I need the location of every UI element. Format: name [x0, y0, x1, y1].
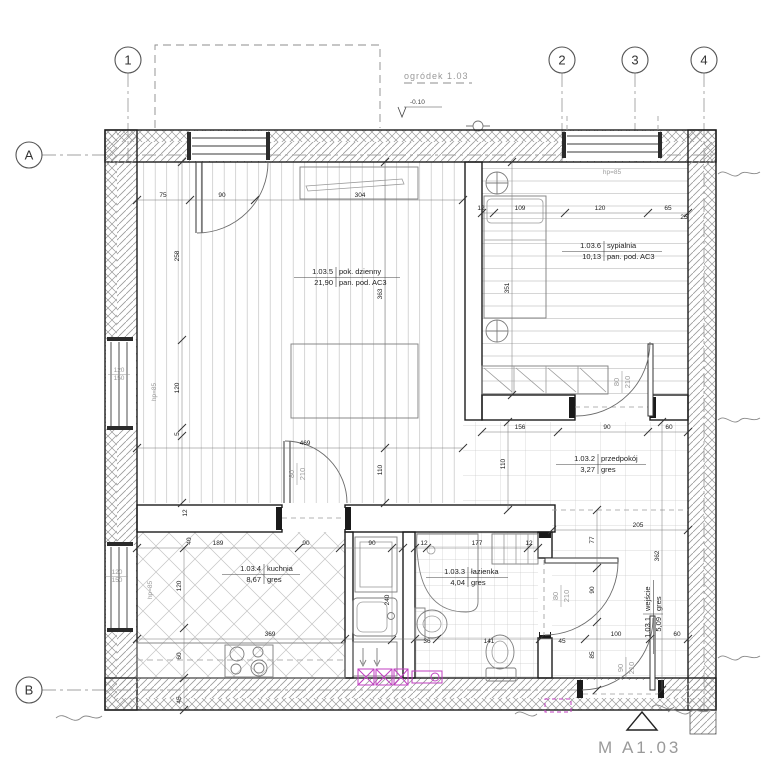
floor-plan-page: 1 2 3 4 A B ogródek 1.03 -0.10	[0, 0, 763, 768]
axis-label: 4	[700, 53, 707, 68]
svg-text:1.03.6: 1.03.6	[580, 241, 601, 250]
sheet-marker: M A1.03	[598, 712, 681, 757]
grid-axis-row-B: B	[16, 677, 42, 703]
svg-text:90: 90	[616, 664, 625, 672]
svg-text:10,13: 10,13	[582, 252, 601, 261]
grid-axis-column-4: 4	[691, 47, 717, 73]
svg-text:gres: gres	[267, 575, 282, 584]
dimension-label: 12	[182, 509, 189, 517]
svg-text:1.03.1: 1.03.1	[643, 617, 652, 638]
dimension-label: 240	[384, 594, 391, 605]
dimension-label: 351	[504, 282, 511, 293]
grid-axis-row-A: A	[16, 142, 42, 168]
svg-text:1.03.2: 1.03.2	[574, 454, 595, 463]
svg-text:4,04: 4,04	[450, 578, 465, 587]
fridge	[355, 537, 397, 592]
terrace-outline: ogródek 1.03 -0.10	[155, 45, 490, 131]
dimension-label: 90	[603, 424, 611, 431]
svg-text:21,90: 21,90	[314, 278, 333, 287]
svg-text:gres: gres	[601, 465, 616, 474]
sheet-label: M A1.03	[598, 738, 681, 757]
dimension-label: 65	[664, 205, 672, 212]
dimension-label: 45	[176, 696, 183, 704]
bathroom-floor	[415, 532, 538, 678]
dimension-label: 177	[472, 540, 483, 547]
svg-text:pok. dzienny: pok. dzienny	[339, 267, 381, 276]
svg-text:3,27: 3,27	[580, 465, 595, 474]
dimension-label: 156	[515, 424, 526, 431]
svg-text:80: 80	[551, 592, 560, 600]
dimension-label: 36	[423, 638, 431, 645]
dimension-label: 110	[500, 458, 507, 469]
svg-text:80: 80	[612, 378, 621, 386]
axis-label: 2	[558, 53, 565, 68]
svg-text:przedpokój: przedpokój	[601, 454, 638, 463]
svg-text:hp=85: hp=85	[603, 169, 622, 176]
kitchen-floor	[137, 532, 345, 678]
dimension-label: 60	[176, 652, 183, 660]
axis-label: A	[25, 148, 34, 163]
floor-plan-drawing: 1 2 3 4 A B ogródek 1.03 -0.10	[0, 0, 763, 768]
dimension-label: 110	[377, 464, 384, 475]
grid-axis-column-1: 1	[115, 47, 141, 73]
dimension-label: 5	[174, 432, 181, 436]
svg-text:-0.10: -0.10	[410, 99, 425, 106]
svg-text:gres: gres	[471, 578, 486, 587]
dimension-label: 60	[673, 631, 681, 638]
svg-text:150: 150	[114, 375, 125, 382]
dimension-label: 60	[665, 424, 673, 431]
north-triangle	[627, 712, 657, 730]
dimension-label: 12	[477, 205, 485, 212]
dimension-label: 25	[680, 214, 688, 221]
dimension-label: 120	[176, 580, 183, 591]
dimension-label: 120	[174, 382, 181, 393]
svg-text:210: 210	[298, 468, 307, 481]
svg-text:1.03.3: 1.03.3	[444, 567, 465, 576]
svg-text:gres: gres	[654, 596, 663, 611]
svg-text:pan. pod. AC3: pan. pod. AC3	[339, 278, 387, 287]
dimension-label: 100	[611, 631, 622, 638]
svg-text:5,09: 5,09	[654, 617, 663, 632]
dimension-label: 45	[558, 638, 566, 645]
dimension-label: 189	[213, 540, 224, 547]
dimension-label: 363	[377, 288, 384, 299]
dimension-label: 258	[174, 250, 181, 261]
bedside-lamp	[486, 172, 508, 194]
svg-text:1.03.4: 1.03.4	[240, 564, 261, 573]
dimension-label: 12	[525, 540, 533, 547]
dimension-label: 141	[484, 638, 495, 645]
hall-floor	[463, 422, 688, 505]
dimension-label: 120	[595, 205, 606, 212]
svg-text:1.03.5: 1.03.5	[312, 267, 333, 276]
dimension-label: 90	[302, 540, 310, 547]
svg-text:210: 210	[623, 376, 632, 389]
svg-text:150: 150	[112, 577, 123, 584]
axis-label: B	[25, 683, 34, 698]
garden-label: ogródek 1.03	[404, 71, 469, 81]
svg-text:8,67: 8,67	[246, 575, 261, 584]
dimension-label: 75	[159, 192, 167, 199]
dimension-label: 12	[420, 540, 428, 547]
dimension-label: 90	[589, 586, 596, 594]
svg-text:120: 120	[114, 367, 125, 374]
dimension-label: 205	[633, 522, 644, 529]
floor-finishes	[137, 162, 688, 678]
dimension-label: 362	[654, 550, 661, 561]
dimension-label: 369	[265, 631, 276, 638]
living-floor	[137, 162, 463, 503]
entry-floor	[552, 505, 688, 678]
dimension-label: 40	[186, 537, 193, 545]
svg-text:łazienka: łazienka	[471, 567, 499, 576]
axis-label: 3	[631, 53, 638, 68]
svg-text:pan. pod. AC3: pan. pod. AC3	[607, 252, 655, 261]
axis-label: 1	[124, 53, 131, 68]
svg-text:120: 120	[112, 569, 123, 576]
dimension-label: 77	[589, 536, 596, 544]
bedroom-floor	[482, 162, 688, 395]
svg-text:80: 80	[287, 470, 296, 478]
dimension-label: 85	[589, 651, 596, 659]
svg-text:210: 210	[562, 590, 571, 603]
bedside-lamp	[486, 320, 508, 342]
dimension-label: 109	[515, 205, 526, 212]
grid-axis-column-3: 3	[622, 47, 648, 73]
dimension-label: 90	[368, 540, 376, 547]
svg-text:210: 210	[627, 662, 636, 675]
svg-text:wejście: wejście	[643, 586, 652, 612]
svg-text:hp=85: hp=85	[151, 382, 158, 401]
dimension-label: 469	[300, 440, 311, 447]
level-marker: -0.10	[398, 99, 442, 117]
grid-axis-column-2: 2	[549, 47, 575, 73]
svg-text:sypialnia: sypialnia	[607, 241, 637, 250]
svg-text:hp=85: hp=85	[147, 580, 154, 599]
dimension-label: 304	[355, 192, 366, 199]
svg-text:kuchnia: kuchnia	[267, 564, 294, 573]
dimension-label: 90	[218, 192, 226, 199]
